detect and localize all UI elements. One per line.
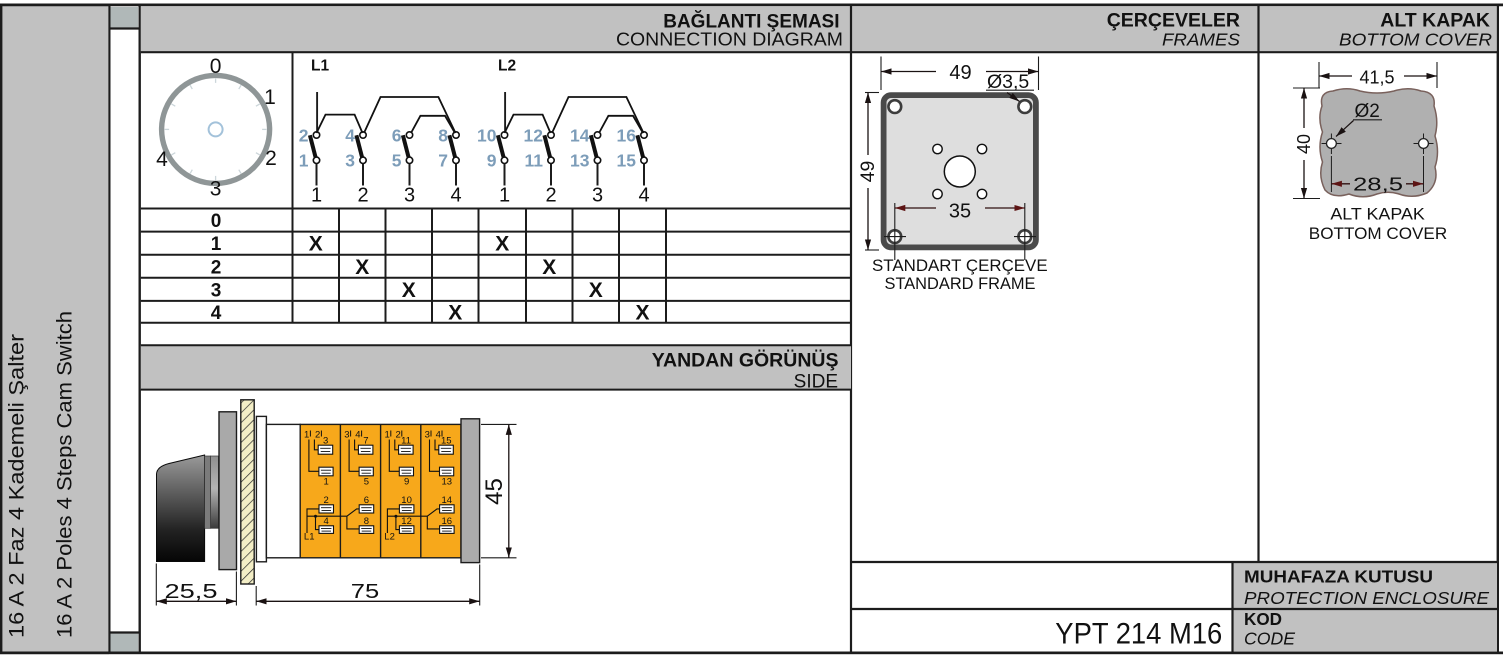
svg-text:PROTECTION ENCLOSURE: PROTECTION ENCLOSURE [1244, 588, 1489, 608]
svg-text:8: 8 [438, 126, 448, 146]
svg-text:Ø2: Ø2 [1355, 101, 1380, 122]
svg-text:3: 3 [425, 430, 430, 441]
svg-text:MUHAFAZA KUTUSU: MUHAFAZA KUTUSU [1244, 567, 1433, 587]
svg-text:3: 3 [592, 185, 603, 207]
svg-text:4: 4 [211, 303, 222, 324]
svg-text:35: 35 [949, 200, 971, 222]
svg-text:10: 10 [477, 126, 497, 146]
svg-text:ALT KAPAK: ALT KAPAK [1330, 206, 1425, 224]
svg-text:1: 1 [499, 185, 510, 207]
svg-text:75: 75 [351, 581, 379, 603]
svg-text:0: 0 [211, 211, 222, 232]
svg-text:X: X [402, 279, 416, 302]
svg-text:3: 3 [344, 430, 349, 441]
svg-text:13: 13 [442, 477, 453, 488]
svg-text:STANDART ÇERÇEVE: STANDART ÇERÇEVE [872, 256, 1048, 275]
svg-text:12: 12 [524, 126, 544, 146]
svg-text:1: 1 [324, 477, 329, 488]
svg-text:CODE: CODE [1244, 629, 1295, 649]
svg-text:SIDE: SIDE [794, 372, 838, 393]
svg-text:5: 5 [392, 150, 402, 170]
svg-text:L1: L1 [304, 532, 315, 543]
svg-text:2: 2 [357, 185, 368, 207]
svg-text:49: 49 [857, 161, 879, 183]
svg-text:14: 14 [570, 126, 590, 146]
svg-text:3: 3 [211, 280, 222, 301]
svg-text:L1: L1 [311, 58, 329, 75]
svg-text:1: 1 [304, 430, 309, 441]
svg-text:BOTTOM COVER: BOTTOM COVER [1309, 225, 1447, 243]
svg-text:9: 9 [487, 150, 497, 170]
svg-text:16 A 2 Poles 4 Steps Cam Switc: 16 A 2 Poles 4 Steps Cam Switch [54, 311, 77, 638]
svg-text:3: 3 [210, 178, 222, 201]
svg-text:4: 4 [450, 185, 461, 207]
svg-text:KOD: KOD [1244, 609, 1282, 629]
svg-text:X: X [495, 233, 509, 256]
svg-text:1: 1 [211, 234, 222, 255]
svg-text:1: 1 [299, 150, 309, 170]
svg-text:X: X [309, 233, 323, 256]
svg-text:25,5: 25,5 [165, 581, 218, 603]
svg-text:ALT KAPAK: ALT KAPAK [1380, 10, 1490, 32]
svg-text:16 A 2 Faz 4 Kademeli Şalter: 16 A 2 Faz 4 Kademeli Şalter [6, 334, 29, 638]
svg-text:2: 2 [545, 185, 556, 207]
svg-text:49: 49 [949, 62, 971, 84]
svg-text:YANDAN GÖRÜNÜŞ: YANDAN GÖRÜNÜŞ [652, 349, 839, 372]
svg-text:0: 0 [210, 55, 222, 78]
svg-text:YPT 214 M16: YPT 214 M16 [1055, 618, 1222, 651]
svg-text:4: 4 [345, 126, 355, 146]
svg-text:9: 9 [404, 477, 409, 488]
svg-text:L2: L2 [498, 58, 516, 75]
svg-text:4: 4 [355, 430, 360, 441]
svg-text:7: 7 [438, 150, 448, 170]
svg-text:BOTTOM COVER: BOTTOM COVER [1339, 30, 1492, 50]
svg-text:5: 5 [364, 477, 369, 488]
svg-text:2: 2 [211, 257, 222, 278]
svg-text:11: 11 [525, 150, 544, 170]
svg-text:X: X [542, 256, 556, 279]
svg-text:6: 6 [392, 126, 402, 146]
svg-text:28,5: 28,5 [1353, 173, 1403, 194]
svg-text:X: X [355, 256, 369, 279]
svg-text:FRAMES: FRAMES [1162, 30, 1240, 50]
svg-text:41,5: 41,5 [1359, 67, 1394, 87]
svg-text:1: 1 [264, 86, 276, 109]
svg-text:3: 3 [345, 150, 355, 170]
svg-text:3: 3 [404, 185, 415, 207]
svg-text:40: 40 [1294, 134, 1314, 154]
svg-text:STANDARD FRAME: STANDARD FRAME [885, 274, 1036, 293]
svg-text:1: 1 [384, 430, 389, 441]
svg-text:L2: L2 [384, 532, 395, 543]
svg-text:13: 13 [570, 150, 590, 170]
svg-text:16: 16 [617, 126, 637, 146]
svg-text:4: 4 [156, 148, 168, 171]
svg-text:1: 1 [311, 185, 322, 207]
svg-text:15: 15 [617, 150, 637, 170]
svg-text:45: 45 [481, 478, 508, 505]
svg-text:2: 2 [265, 147, 277, 170]
svg-text:ÇERÇEVELER: ÇERÇEVELER [1107, 10, 1240, 32]
svg-text:X: X [448, 301, 462, 324]
svg-text:2: 2 [395, 430, 400, 441]
svg-text:2: 2 [315, 430, 320, 441]
svg-text:X: X [589, 279, 603, 302]
svg-text:X: X [635, 301, 649, 324]
svg-text:2: 2 [299, 126, 309, 146]
svg-text:4: 4 [638, 185, 649, 207]
svg-text:CONNECTION DIAGRAM: CONNECTION DIAGRAM [616, 30, 843, 50]
